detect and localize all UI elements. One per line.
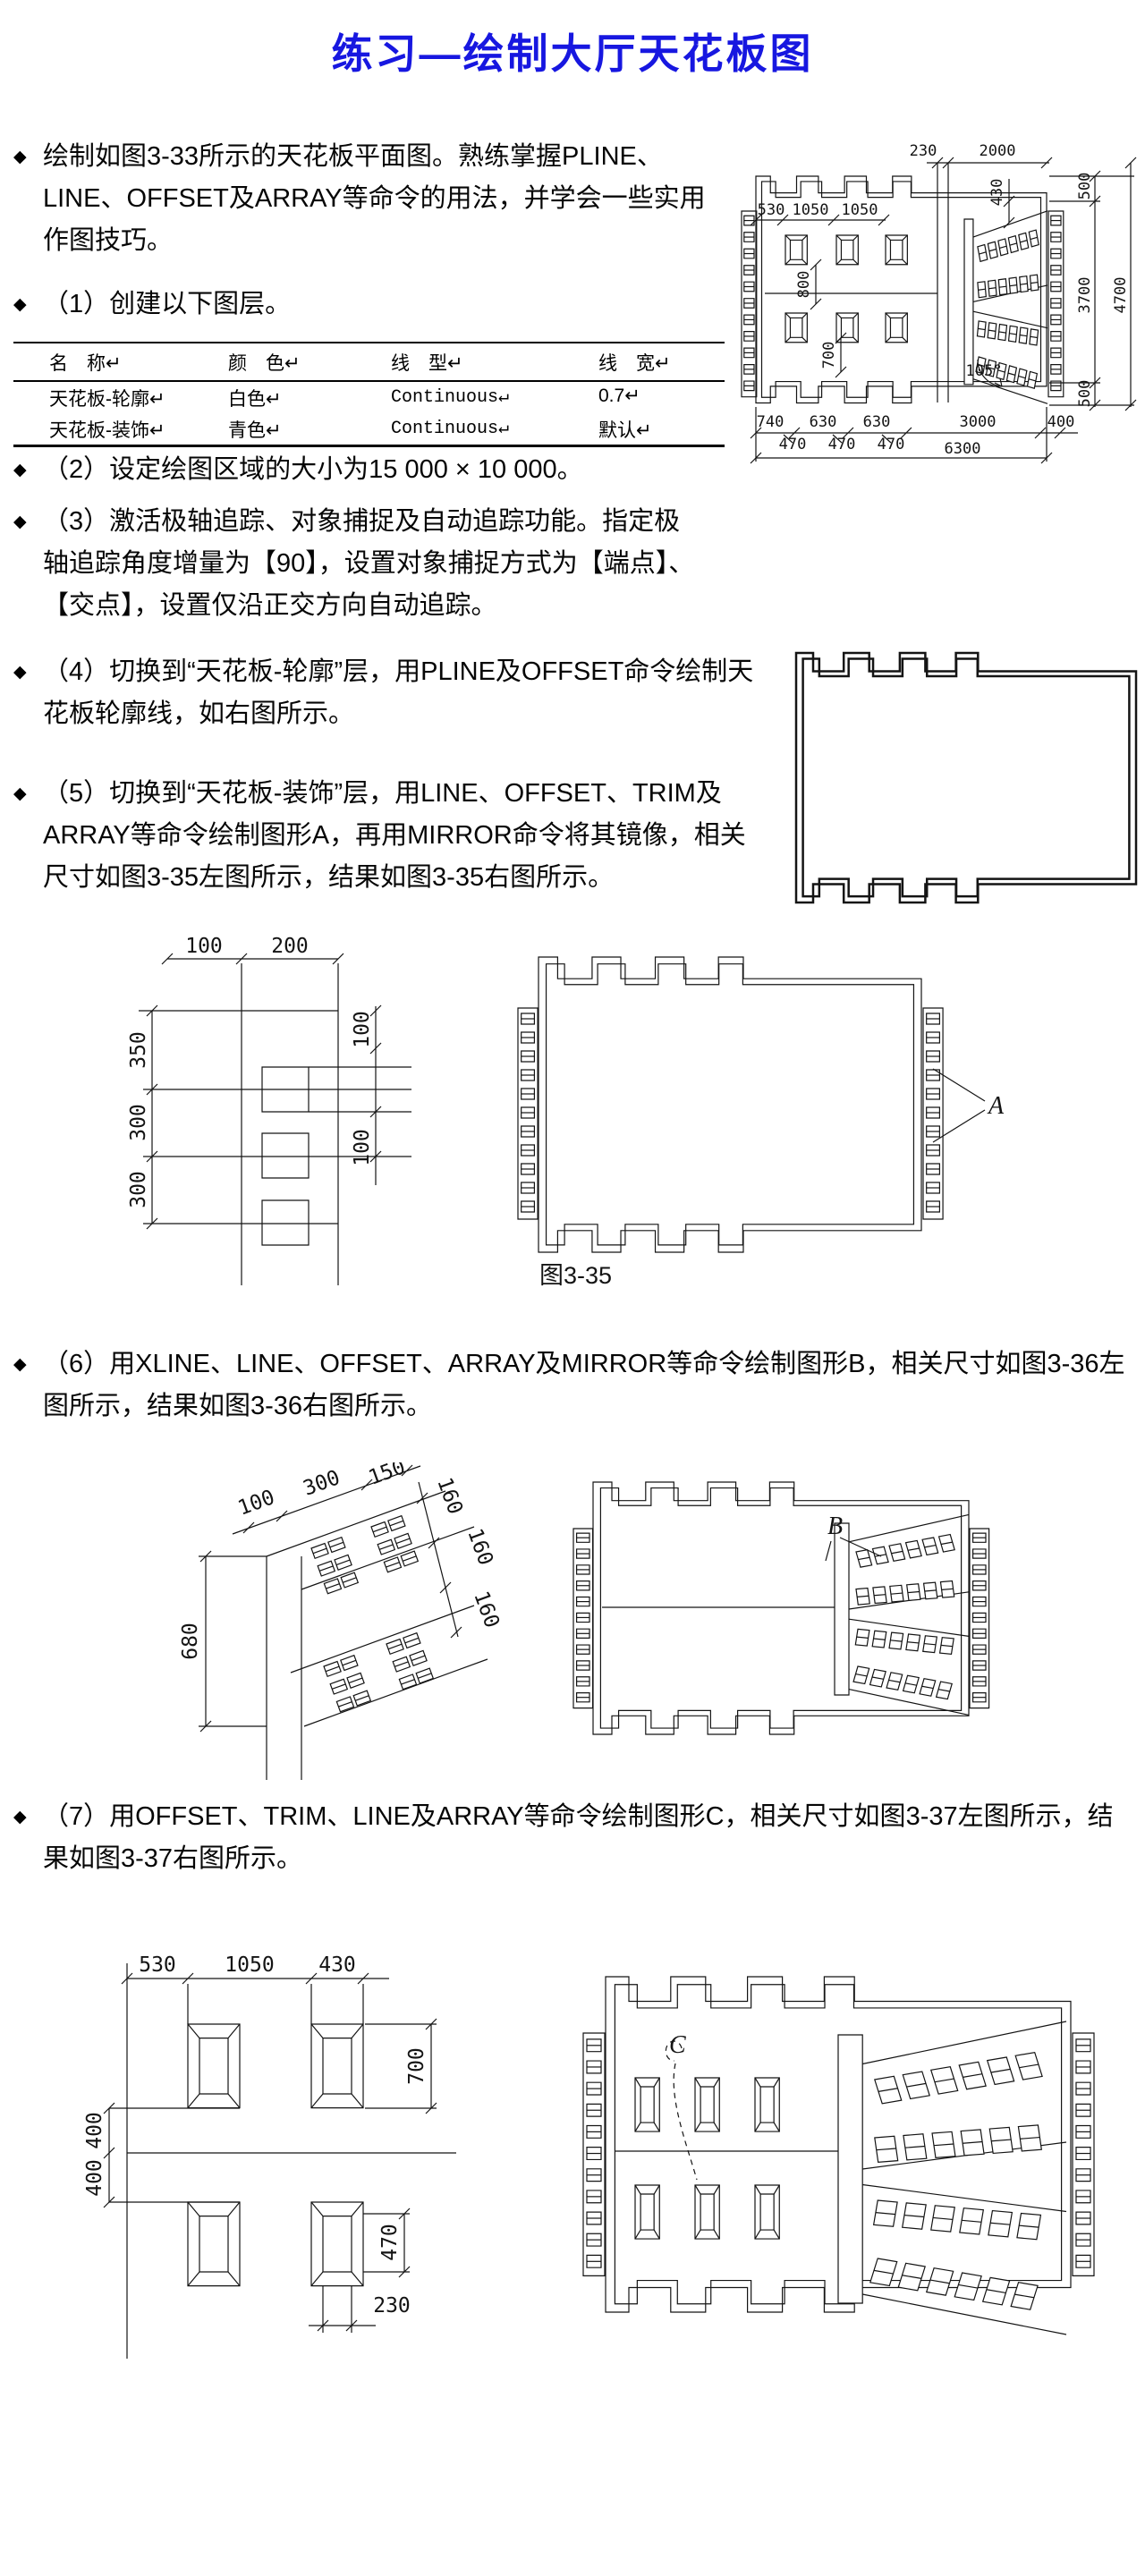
dim-label: 105° <box>966 362 1003 380</box>
bullet-diamond-icon: ◆ <box>13 1343 43 1385</box>
bullet-diamond-icon: ◆ <box>13 651 43 693</box>
bullet-text: 绘制如图3-33所示的天花板平面图。熟练掌握PLINE、LINE、OFFSET及… <box>43 136 723 262</box>
figure-3-33-ceiling-plan: 230 2000 530 1050 1050 430 800 700 500 3… <box>741 134 1145 467</box>
dim-label: 400 <box>83 2159 106 2197</box>
dim-label: 470 <box>878 436 905 453</box>
dim-label: 300 <box>127 1104 150 1141</box>
figure-3-36-right-result: B <box>568 1471 1015 1784</box>
col-header-linetype: 线 型↵ <box>389 349 586 376</box>
dim-label: 630 <box>810 413 837 431</box>
dim-label: 350 <box>127 1031 150 1069</box>
cell-layer-lineweight: 默认↵ <box>586 416 725 443</box>
dim-label: 4700 <box>1112 277 1130 314</box>
bullet-diamond-icon: ◆ <box>13 449 43 491</box>
dim-label: 680 <box>179 1623 202 1660</box>
cell-layer-color: 青色↵ <box>228 416 389 443</box>
col-header-color: 颜 色↵ <box>228 349 389 376</box>
dim-label: 300 <box>127 1171 150 1208</box>
dim-label: 100 <box>185 935 223 958</box>
dim-label: 500 <box>1076 380 1094 408</box>
dim-label: 530 <box>758 201 785 219</box>
dim-label: 740 <box>757 413 785 431</box>
dim-label: 1050 <box>225 1953 274 1977</box>
cell-layer-name: 天花板-轮廓↵ <box>13 385 228 411</box>
dim-label: 630 <box>863 413 891 431</box>
dim-label: 100 <box>235 1486 278 1521</box>
cell-layer-lineweight: 0.7↵ <box>586 385 725 411</box>
dim-label: 200 <box>271 935 309 958</box>
dim-label: 3000 <box>960 413 997 431</box>
dim-label: 230 <box>910 142 937 160</box>
figure-label-a: A <box>987 1092 1005 1120</box>
dim-label: 700 <box>820 342 838 369</box>
cell-layer-name: 天花板-装饰↵ <box>13 416 228 443</box>
figure-label-c: C <box>669 2031 686 2059</box>
bullet-text: （1）创建以下图层。 <box>43 284 723 326</box>
bullet-item-step5: ◆ （5）切换到“天花板-装饰”层，用LINE、OFFSET、TRIM及ARRA… <box>13 773 750 899</box>
dim-label: 160 <box>469 1589 504 1631</box>
col-header-lineweight: 线 宽↵ <box>586 349 725 376</box>
figure-3-35-left-detail: 100 200 350 300 300 100 100 <box>125 917 420 1292</box>
table-row: 天花板-装饰↵ 青色↵ Continuous↵ 默认↵ <box>13 413 725 445</box>
figure-3-37-right-result: C <box>574 1963 1145 2411</box>
figure-3-34-outline <box>787 646 1145 911</box>
dim-label: 100 <box>351 1011 374 1048</box>
dim-label: 700 <box>405 2047 428 2085</box>
figure-label-b: B <box>827 1513 843 1540</box>
figure-3-37-left-detail: 530 1050 430 700 400 400 470 230 <box>81 1932 465 2370</box>
cell-layer-linetype: Continuous↵ <box>389 416 586 443</box>
document-page: 练习—绘制大厅天花板图 ◆ 绘制如图3-33所示的天花板平面图。熟练掌握PLIN… <box>0 0 1145 2576</box>
dim-label: 160 <box>432 1475 467 1518</box>
dim-label: 800 <box>795 271 813 299</box>
dim-label: 150 <box>366 1462 409 1490</box>
figure-3-36-left-detail: 100 300 150 160 160 160 680 <box>98 1462 519 1784</box>
bullet-text: （4）切换到“天花板-轮廓”层，用PLINE及OFFSET命令绘制天花板轮廓线，… <box>43 651 759 735</box>
dim-label: 400 <box>83 2112 106 2149</box>
bullet-item-step4: ◆ （4）切换到“天花板-轮廓”层，用PLINE及OFFSET命令绘制天花板轮廓… <box>13 651 759 735</box>
col-header-name: 名 称↵ <box>13 349 228 376</box>
bullet-diamond-icon: ◆ <box>13 501 43 543</box>
bullet-item-step6: ◆ （6）用XLINE、LINE、OFFSET、ARRAY及MIRROR等命令绘… <box>13 1343 1130 1428</box>
dim-label: 500 <box>1076 173 1094 200</box>
dim-label: 3700 <box>1076 277 1094 314</box>
dim-label: 430 <box>988 179 1006 207</box>
bullet-item-intro: ◆ 绘制如图3-33所示的天花板平面图。熟练掌握PLINE、LINE、OFFSE… <box>13 136 723 262</box>
dim-label: 400 <box>1047 413 1075 431</box>
table-row: 天花板-轮廓↵ 白色↵ Continuous↵ 0.7↵ <box>13 382 725 413</box>
bullet-diamond-icon: ◆ <box>13 284 43 326</box>
cell-layer-linetype: Continuous↵ <box>389 385 586 411</box>
dim-label: 470 <box>378 2224 402 2261</box>
bullet-item-step7: ◆ （7）用OFFSET、TRIM、LINE及ARRAY等命令绘制图形C，相关尺… <box>13 1796 1130 1880</box>
bullet-diamond-icon: ◆ <box>13 136 43 178</box>
cell-layer-color: 白色↵ <box>228 385 389 411</box>
dim-label: 1050 <box>842 201 878 219</box>
dim-label: 6300 <box>945 440 981 458</box>
dim-label: 230 <box>373 2294 411 2318</box>
layer-table: 名 称↵ 颜 色↵ 线 型↵ 线 宽↵ 天花板-轮廓↵ 白色↵ Continuo… <box>13 342 725 447</box>
dim-label: 470 <box>779 436 807 453</box>
bullet-text: （6）用XLINE、LINE、OFFSET、ARRAY及MIRROR等命令绘制图… <box>43 1343 1130 1428</box>
bullet-item-step2: ◆ （2）设定绘图区域的大小为15 000 × 10 000。 <box>13 449 741 491</box>
figure-3-35-right-result: A 图3-35 <box>514 926 1015 1294</box>
bullet-text: （2）设定绘图区域的大小为15 000 × 10 000。 <box>43 449 741 491</box>
figure-caption: 图3-35 <box>539 1262 612 1289</box>
layer-table-header-row: 名 称↵ 颜 色↵ 线 型↵ 线 宽↵ <box>13 343 725 382</box>
dim-label: 470 <box>828 436 856 453</box>
dim-label: 100 <box>351 1129 374 1166</box>
bullet-diamond-icon: ◆ <box>13 773 43 815</box>
bullet-text: （5）切换到“天花板-装饰”层，用LINE、OFFSET、TRIM及ARRAY等… <box>43 773 750 899</box>
bullet-item-step3: ◆ （3）激活极轴追踪、对象捕捉及自动追踪功能。指定极轴追踪角度增量为【90】，… <box>13 501 700 627</box>
dim-label: 430 <box>318 1953 356 1977</box>
dim-label: 160 <box>462 1526 497 1569</box>
bullet-diamond-icon: ◆ <box>13 1796 43 1838</box>
page-title: 练习—绘制大厅天花板图 <box>0 21 1145 80</box>
bullet-text: （3）激活极轴追踪、对象捕捉及自动追踪功能。指定极轴追踪角度增量为【90】，设置… <box>43 501 700 627</box>
bullet-text: （7）用OFFSET、TRIM、LINE及ARRAY等命令绘制图形C，相关尺寸如… <box>43 1796 1130 1880</box>
dim-label: 530 <box>139 1953 176 1977</box>
bullet-item-step1: ◆ （1）创建以下图层。 <box>13 284 723 326</box>
dim-label: 300 <box>301 1466 343 1501</box>
dim-label: 1050 <box>793 201 829 219</box>
dim-label: 2000 <box>980 142 1016 160</box>
